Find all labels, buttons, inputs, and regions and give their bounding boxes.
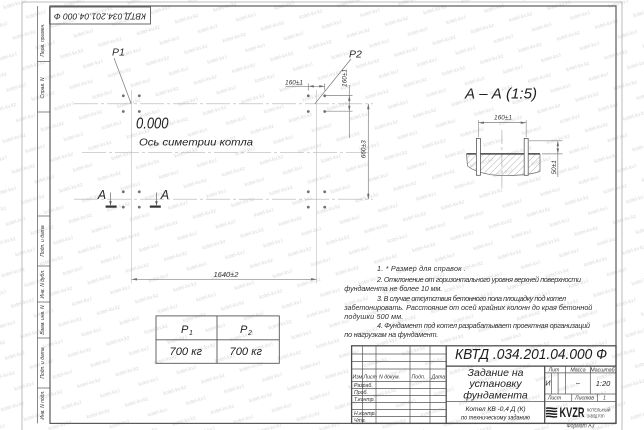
svg-text:по нагрузкам на фундамент.: по нагрузкам на фундамент. (344, 330, 438, 339)
svg-text:Листов: Листов (574, 396, 594, 402)
svg-text:А: А (97, 188, 106, 202)
svg-text:Р: Р (240, 324, 248, 336)
svg-text:1: 1 (189, 330, 193, 337)
svg-text:Н.контр.: Н.контр. (354, 411, 376, 417)
svg-text:КВТД .034.201.04.000 Ф: КВТД .034.201.04.000 Ф (455, 346, 607, 363)
svg-text:по техническому заданию: по техническому заданию (461, 414, 530, 422)
svg-text:50±1: 50±1 (551, 160, 558, 175)
svg-text:Масштаб: Масштаб (590, 368, 615, 374)
svg-text:700 кг: 700 кг (170, 346, 203, 358)
svg-text:1. * Размер для справок .: 1. * Размер для справок . (377, 264, 466, 273)
svg-text:Р: Р (181, 324, 189, 336)
svg-text:Подп.: Подп. (412, 375, 426, 381)
svg-text:Дата: Дата (431, 375, 446, 381)
svg-text:KVZR: KVZR (560, 404, 585, 420)
svg-text:А: А (160, 188, 169, 202)
svg-text:Инв. N подл.: Инв. N подл. (40, 390, 46, 419)
svg-text:фундамента не более 10 мм.: фундамента не более 10 мм. (344, 284, 442, 293)
svg-text:2: 2 (247, 330, 252, 337)
svg-text:P1: P1 (112, 47, 125, 59)
svg-text:660±3: 660±3 (361, 140, 368, 158)
svg-text:–: – (575, 380, 580, 387)
svg-text:КОТЕЛЬНЫЙ: КОТЕЛЬНЫЙ (587, 406, 611, 413)
svg-text:Подп. и дата: Подп. и дата (40, 225, 46, 257)
svg-text:ЗАВОД РЭП: ЗАВОД РЭП (587, 414, 605, 419)
svg-text:Т.контр.: Т.контр. (354, 397, 375, 403)
svg-text:160±1: 160±1 (285, 80, 303, 87)
svg-text:1: 1 (603, 396, 606, 402)
svg-text:Взам. инв. N: Взам. инв. N (40, 305, 46, 335)
svg-text:Инв. N дубл.: Инв. N дубл. (40, 270, 46, 299)
svg-text:забетонировать. Расстояние от: забетонировать. Расстояние от осей крайн… (343, 303, 592, 312)
svg-text:4. Фундамент под котел разраба: 4. Фундамент под котел разрабатывает про… (377, 321, 590, 330)
svg-text:Лист: Лист (547, 396, 562, 402)
svg-text:подушки 500 мм.: подушки 500 мм. (344, 312, 403, 321)
svg-text:Котел КВ -0,4 Д (К): Котел КВ -0,4 Д (К) (465, 406, 525, 413)
svg-text:КВТД.034.201.04.000 Ф: КВТД.034.201.04.000 Ф (54, 11, 146, 21)
svg-text:Ось симетрии котла: Ось симетрии котла (139, 137, 253, 149)
svg-text:N докум.: N докум. (379, 375, 400, 381)
svg-text:Формат А3: Формат А3 (567, 423, 596, 429)
svg-text:0.000: 0.000 (136, 116, 169, 133)
svg-text:160±1: 160±1 (342, 69, 349, 87)
svg-text:Изм.Лист: Изм.Лист (353, 375, 378, 381)
svg-text:1640±2: 1640±2 (214, 270, 240, 279)
svg-text:фундамента: фундамента (463, 390, 528, 402)
svg-text:Чтв.: Чтв. (354, 418, 366, 424)
svg-text:Справ. N: Справ. N (40, 77, 46, 98)
svg-text:700 кг: 700 кг (230, 346, 263, 358)
svg-text:установку: установку (468, 378, 522, 390)
svg-text:Разраб.: Разраб. (354, 383, 373, 389)
svg-text:2. Отклонение от горизонтально: 2. Отклонение от горизонтального уровня … (376, 275, 581, 284)
svg-text:Проб.: Проб. (354, 390, 368, 396)
svg-text:3. В случае отсутствия бетонно: 3. В случае отсутствия бетонного пола пл… (377, 294, 566, 303)
svg-text:Перв. примен.: Перв. примен. (40, 23, 46, 56)
svg-text:Лит: Лит (548, 368, 560, 374)
svg-text:Подп. и дата: Подп. и дата (40, 347, 46, 379)
svg-text:P2: P2 (349, 49, 362, 61)
svg-text:Масса: Масса (570, 368, 585, 374)
svg-text:160±1: 160±1 (494, 115, 512, 122)
svg-text:1:20: 1:20 (596, 379, 611, 388)
svg-text:А – А (1:5): А – А (1:5) (464, 86, 537, 103)
